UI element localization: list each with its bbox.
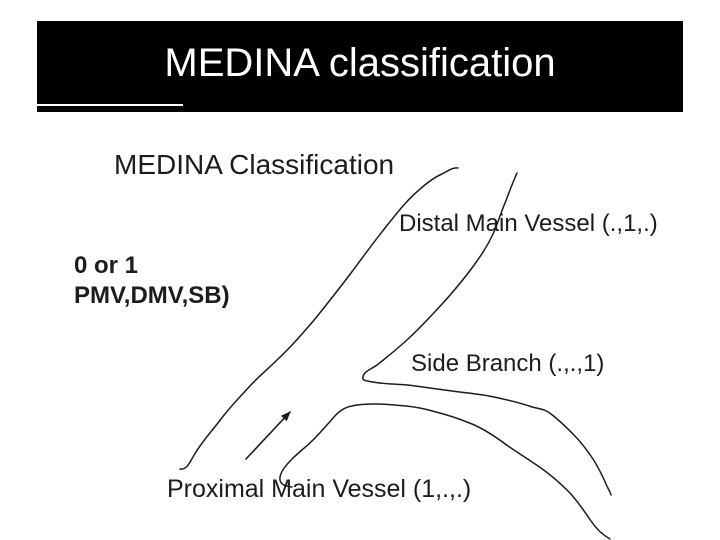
- label-side-branch: Side Branch (.,.,1): [411, 352, 604, 376]
- label-distal-main-vessel: Distal Main Vessel (.,1,.): [399, 212, 658, 236]
- slide-canvas: MEDINA classification MEDINA Classificat…: [0, 0, 720, 540]
- flow-arrow: [246, 412, 290, 459]
- label-proximal-main-vessel: Proximal Main Vessel (1,.,.): [167, 477, 471, 502]
- score-note: 0 or 1 PMV,DMV,SB): [74, 251, 230, 311]
- medina-diagram: MEDINA Classification 0 or 1 PMV,DMV,SB)…: [0, 0, 720, 540]
- bottom-wall-and-side-branch-bottom-line: [280, 404, 610, 539]
- diagram-title: MEDINA Classification: [114, 151, 394, 179]
- score-note-line1: 0 or 1: [74, 251, 230, 281]
- score-note-line2: PMV,DMV,SB): [74, 281, 230, 311]
